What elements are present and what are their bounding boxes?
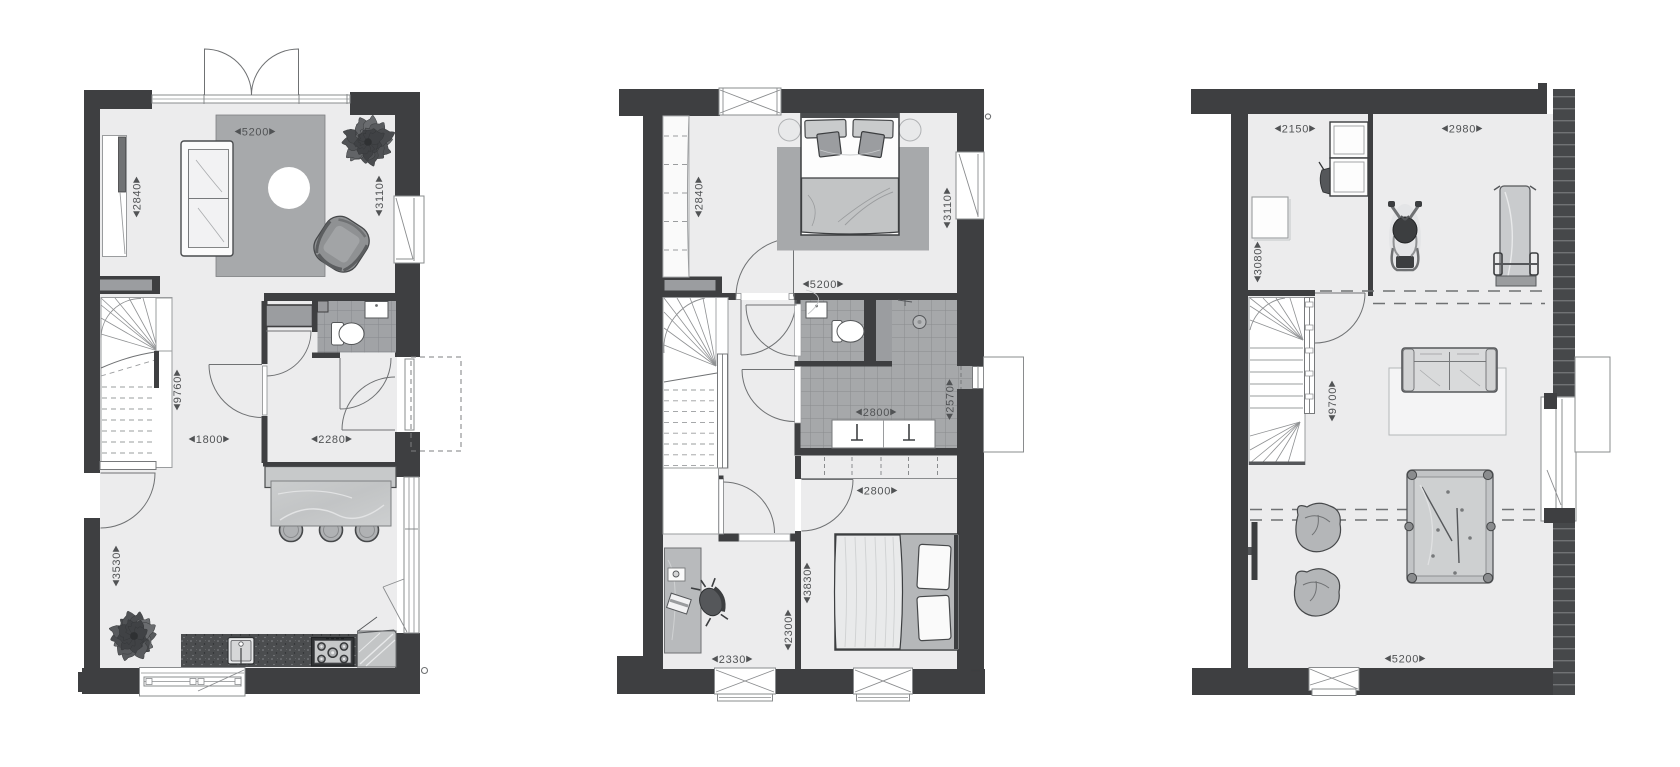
svg-text:2280: 2280 xyxy=(318,434,345,446)
svg-text:2300: 2300 xyxy=(783,616,795,643)
svg-text:9760: 9760 xyxy=(172,376,184,403)
svg-text:2150: 2150 xyxy=(1282,123,1309,135)
svg-text:3530: 3530 xyxy=(111,552,123,579)
svg-text:5200: 5200 xyxy=(810,279,837,291)
svg-text:5200: 5200 xyxy=(242,126,269,138)
svg-text:9700: 9700 xyxy=(1327,387,1339,414)
svg-text:2800: 2800 xyxy=(864,485,891,497)
svg-text:3830: 3830 xyxy=(802,569,814,596)
svg-text:3110: 3110 xyxy=(942,194,954,220)
svg-text:2570: 2570 xyxy=(944,385,956,412)
svg-text:5200: 5200 xyxy=(1392,653,1419,665)
svg-text:2330: 2330 xyxy=(719,654,746,666)
svg-text:2980: 2980 xyxy=(1449,123,1476,135)
svg-text:3080: 3080 xyxy=(1252,248,1264,275)
svg-text:2800: 2800 xyxy=(863,407,890,419)
svg-text:1800: 1800 xyxy=(196,434,223,446)
svg-text:2840: 2840 xyxy=(693,183,705,210)
svg-text:3110: 3110 xyxy=(374,182,386,208)
svg-text:2840: 2840 xyxy=(131,183,143,210)
